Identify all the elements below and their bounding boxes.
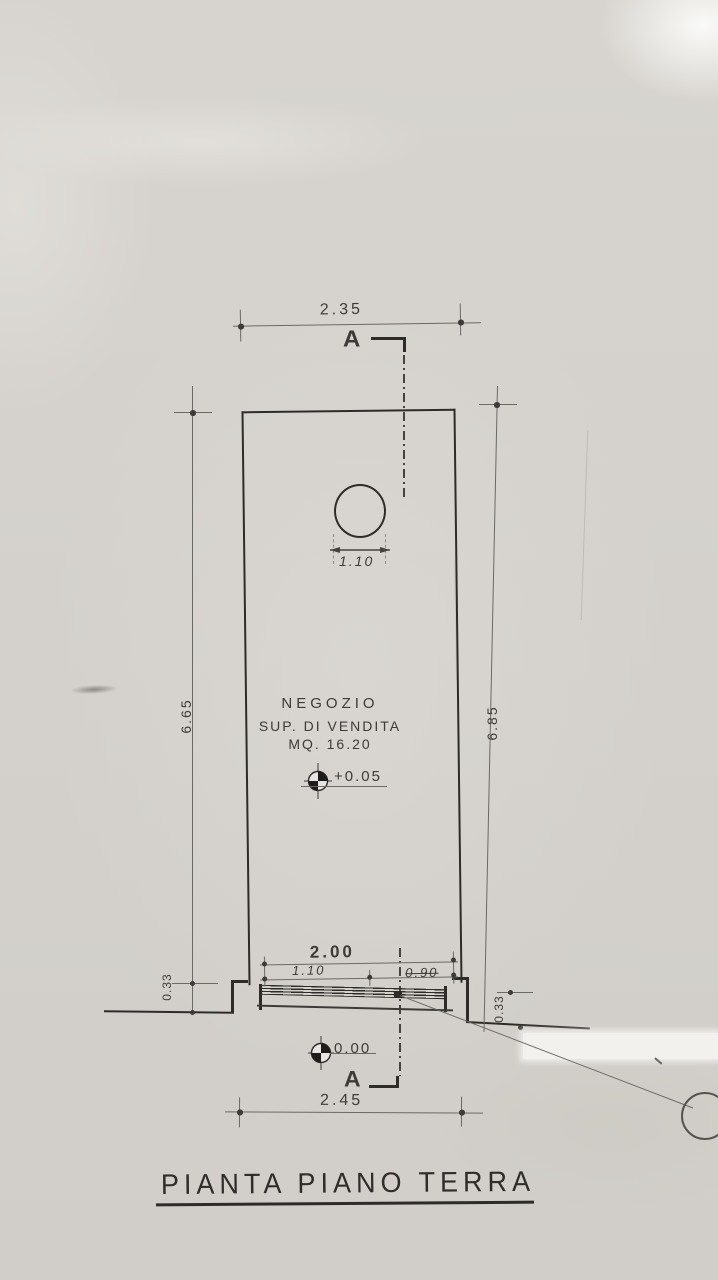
wall-step-right-vertical [466,977,469,1022]
dim-curb-right-label: 0.33 [492,983,506,1035]
dim-end-dot [459,1110,465,1116]
wall-step-left-vertical [231,980,234,1013]
scan-artifact-line [581,430,589,620]
dim-opening-right-label: 0.90 [405,965,439,981]
dim-opening-left-label: 1.10 [292,963,326,979]
room-name: NEGOZIO [250,695,410,712]
level-interior-label: +0.05 [334,768,382,785]
dim-dot [367,975,372,980]
dim-dot [518,1025,523,1030]
dim-dot [190,410,196,416]
dim-bottom-width-label: 2.45 [320,1092,363,1110]
section-bracket-horizontal [371,337,406,340]
section-letter-top: A [343,327,360,354]
scanned-floor-plan-sheet: 2.35 A 6.65 0.33 6.85 0.33 1.10 N [0,0,718,1280]
section-bracket-horizontal [369,1085,399,1088]
dim-right-depth-label: 6.85 [484,693,500,753]
room-area: MQ. 16.20 [250,736,410,752]
dim-circle-width-label: 1.10 [339,553,374,569]
dim-dot [190,981,195,986]
section-letter-bottom: A [344,1067,361,1093]
dim-dot [508,990,513,995]
level-exterior-underline [330,1053,376,1054]
dim-tick [172,983,218,984]
dim-opening-group: 2.00 1.10 0.90 [250,936,466,989]
dim-dot [190,1010,195,1015]
dim-opening-total-label: 2.00 [310,942,355,963]
dim-bottom-width-group: 2.45 [218,1089,488,1135]
detail-reference-circle [681,1092,718,1140]
dim-end-dot [237,1109,243,1115]
section-bracket-vertical [403,337,406,352]
dim-dot [262,961,267,966]
section-bracket-vertical [396,1076,399,1087]
dim-dot [451,972,456,977]
dim-top-width-label: 2.35 [320,301,363,320]
level-exterior-label: 0.00 [334,1040,371,1057]
level-interior-underline [301,786,387,787]
plan-circle-element [334,484,386,538]
dim-curb-left-label: 0.33 [160,961,174,1013]
dim-end-dot [458,319,464,325]
title-underline [156,1201,534,1206]
scan-smudge [70,684,118,695]
dim-end-dot [238,324,244,330]
level-marker-icon [303,763,333,799]
dim-line [225,1111,483,1114]
room-line2: SUP. DI VENDITA [250,718,410,734]
dim-dot [494,402,500,408]
dim-dot [451,957,456,962]
dim-left-depth-label: 6.65 [178,686,194,746]
dim-extension-tick [453,951,455,983]
dim-dot [262,976,267,981]
page-title: PIANTA PIANO TERRA [160,1166,536,1202]
